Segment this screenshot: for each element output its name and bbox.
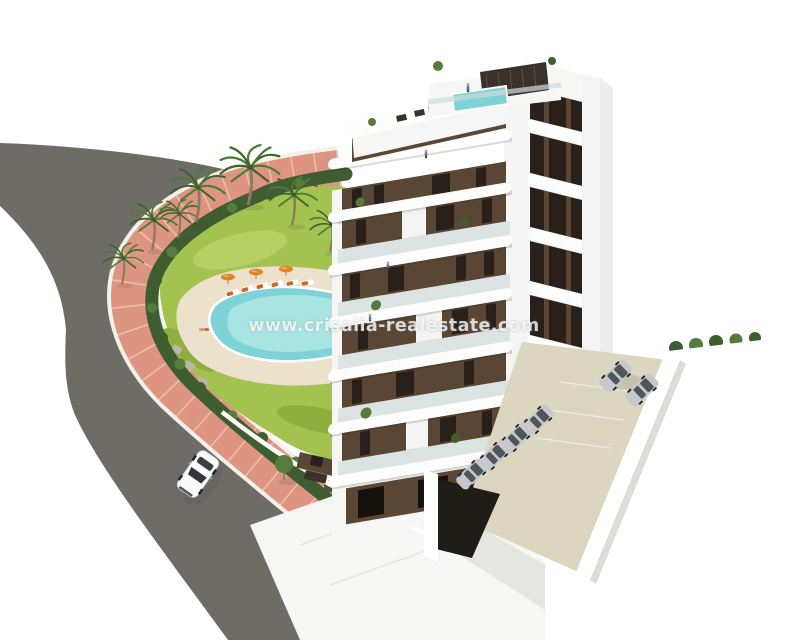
architectural-render: .towel{fill:#d2622a}.t2 .towel{fill:#c45… [0, 0, 800, 640]
render-scene: .towel{fill:#d2622a}.t2 .towel{fill:#c45… [0, 0, 800, 640]
person-sunbathing [199, 328, 209, 331]
watermark-text: www.crisalia-realestate.com [248, 316, 539, 336]
